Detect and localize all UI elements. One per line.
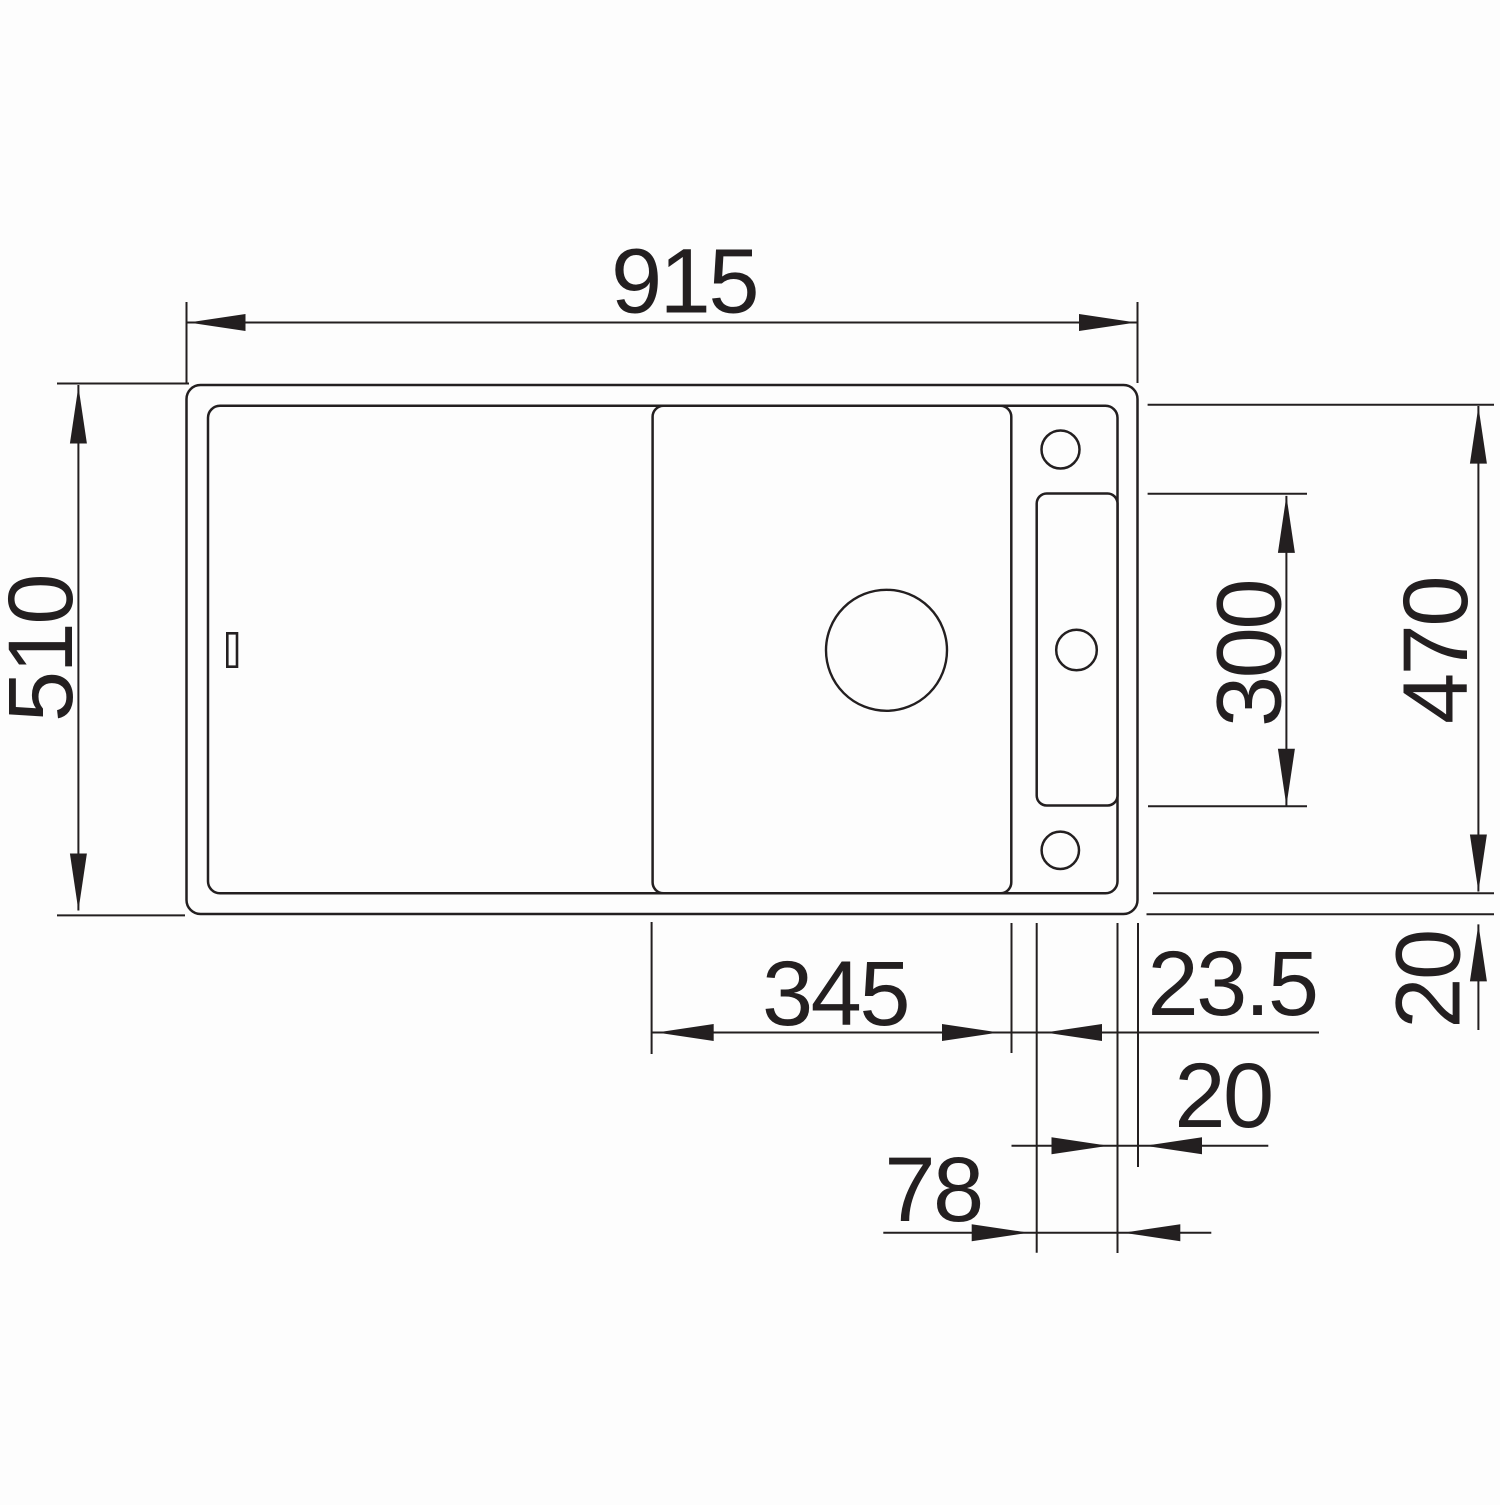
svg-text:510: 510 [0, 576, 92, 722]
svg-text:915: 915 [611, 231, 757, 333]
svg-text:20: 20 [1174, 1045, 1271, 1147]
svg-text:345: 345 [762, 943, 908, 1045]
svg-text:20: 20 [1378, 931, 1480, 1028]
svg-text:23.5: 23.5 [1147, 933, 1316, 1035]
svg-text:300: 300 [1199, 581, 1301, 727]
svg-text:470: 470 [1385, 578, 1487, 724]
svg-text:78: 78 [884, 1139, 981, 1241]
